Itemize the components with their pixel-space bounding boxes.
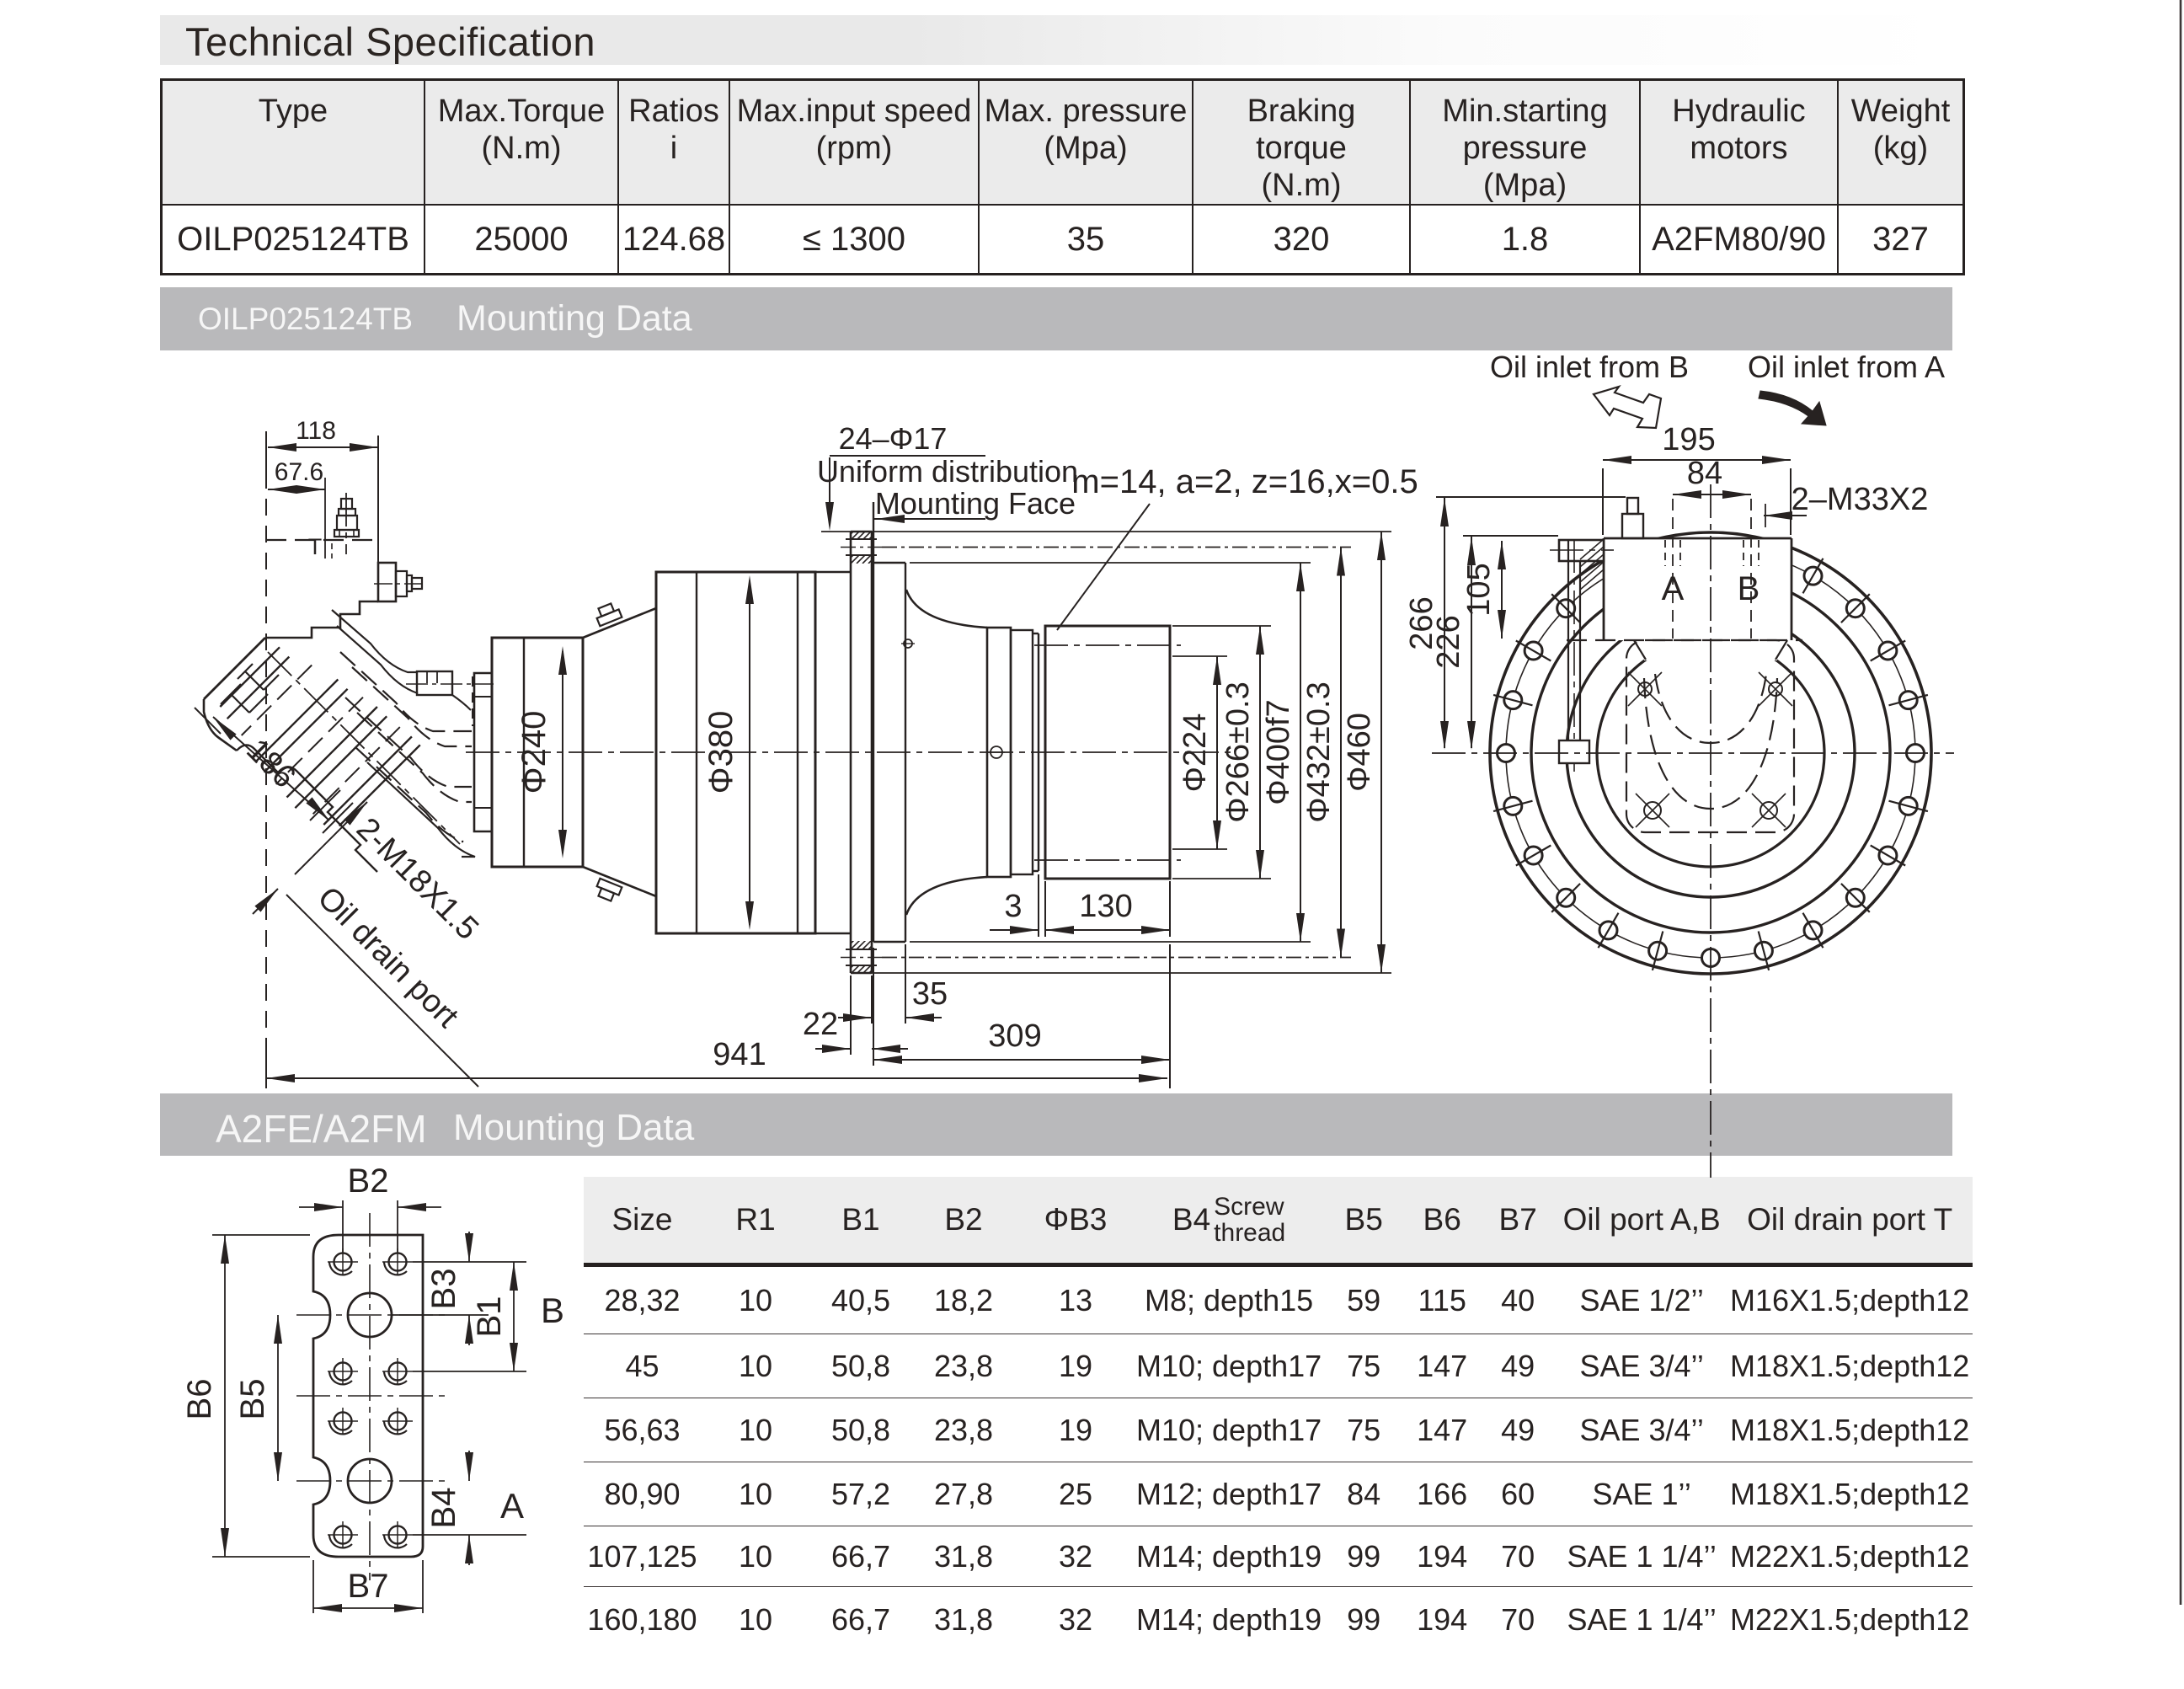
svg-text:Φ432±0.3: Φ432±0.3 [1301, 681, 1337, 822]
svg-text:B2: B2 [348, 1163, 389, 1200]
svg-text:B7: B7 [348, 1568, 389, 1605]
svg-text:B4: B4 [425, 1488, 462, 1529]
svg-text:m=14, a=2, z=16,x=0.5: m=14, a=2, z=16,x=0.5 [1071, 463, 1418, 500]
svg-text:Φ266±0.3: Φ266±0.3 [1220, 681, 1256, 822]
svg-text:B: B [541, 1291, 564, 1330]
svg-text:2–M33X2: 2–M33X2 [1792, 482, 1929, 517]
svg-text:Oil inlet from A: Oil inlet from A [1748, 350, 1945, 384]
svg-text:B: B [1738, 570, 1760, 607]
svg-text:84: 84 [1687, 456, 1722, 491]
svg-text:Φ400f7: Φ400f7 [1261, 699, 1296, 804]
svg-text:186: 186 [239, 732, 302, 795]
svg-text:130: 130 [1079, 889, 1132, 924]
svg-text:B5: B5 [234, 1379, 271, 1420]
svg-text:105: 105 [1461, 563, 1497, 616]
svg-text:118: 118 [296, 417, 336, 445]
svg-text:22: 22 [803, 1007, 838, 1042]
svg-text:B6: B6 [181, 1379, 218, 1420]
svg-text:Oil inlet from B: Oil inlet from B [1490, 350, 1689, 384]
svg-text:B3: B3 [425, 1269, 462, 1310]
svg-text:195: 195 [1662, 422, 1715, 457]
svg-text:Φ460: Φ460 [1342, 713, 1377, 792]
svg-text:Φ224: Φ224 [1177, 714, 1213, 793]
svg-text:309: 309 [988, 1018, 1041, 1054]
svg-text:67.6: 67.6 [275, 458, 323, 486]
svg-text:3: 3 [1004, 889, 1022, 924]
svg-text:35: 35 [912, 976, 948, 1012]
svg-text:A: A [500, 1486, 524, 1526]
svg-text:Mounting Face: Mounting Face [875, 486, 1076, 521]
svg-text:24–Φ17: 24–Φ17 [839, 421, 948, 456]
svg-text:T: T [308, 534, 323, 559]
svg-text:B1: B1 [471, 1296, 508, 1338]
svg-text:941: 941 [713, 1037, 766, 1072]
svg-text:Uniform distribution: Uniform distribution [817, 454, 1078, 489]
svg-text:226: 226 [1431, 615, 1466, 668]
